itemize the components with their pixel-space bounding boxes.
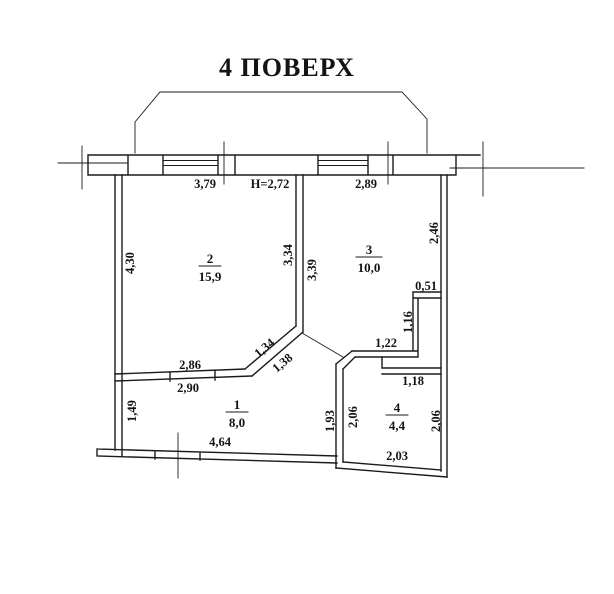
- dim-niche-horizontal: 1,22: [375, 336, 397, 350]
- room4-area: 4,4: [389, 418, 406, 433]
- room2-area: 15,9: [199, 269, 222, 284]
- dim-room2-left: 4,30: [123, 252, 137, 274]
- dim-diag-lower: 1,38: [270, 351, 296, 376]
- floor-plan: 4 ПОВЕРХ 3,79 H=2,72 2,89 4,30 3,34 3,39…: [0, 0, 614, 594]
- dim-room4-left-outer: 1,93: [323, 410, 337, 432]
- balcony-outline: [135, 92, 427, 153]
- dim-room4-top: 1,18: [402, 374, 424, 388]
- left-wall: [115, 175, 122, 456]
- dim-room4-bottom: 2,03: [386, 449, 408, 463]
- window-glyphs: [163, 161, 368, 166]
- top-wall: [88, 155, 480, 175]
- dim-room2-bottom-below: 2,90: [177, 381, 199, 395]
- dim-mid-wall-right: 3,39: [305, 259, 319, 281]
- ceiling-height-label: H=2,72: [251, 177, 290, 191]
- axis-line-right: [450, 142, 584, 196]
- dim-niche-vertical: 1,16: [401, 311, 415, 333]
- dim-room2-bottom-above: 2,86: [179, 358, 201, 372]
- room4-number: 4: [394, 400, 401, 415]
- dim-room4-left-inner: 2,06: [346, 406, 360, 428]
- dim-mid-wall-left: 3,34: [281, 243, 295, 266]
- room2-number: 2: [207, 251, 214, 266]
- dim-top-left: 3,79: [194, 177, 216, 191]
- dim-room4-right: 2,06: [429, 410, 443, 432]
- room1-area: 8,0: [229, 415, 245, 430]
- room3-area: 10,0: [358, 260, 381, 275]
- floor-plan-drawing: 4 ПОВЕРХ 3,79 H=2,72 2,89 4,30 3,34 3,39…: [0, 0, 614, 594]
- dim-top-right: 2,89: [355, 177, 377, 191]
- axis-line-left: [58, 146, 127, 189]
- room4-top-wall: [382, 357, 441, 374]
- room1-number: 1: [234, 397, 241, 412]
- dim-step: 0,51: [415, 279, 437, 293]
- room4-bottom-wall: [336, 462, 447, 477]
- room3-number: 3: [366, 242, 373, 257]
- dim-room3-right: 2,46: [427, 222, 441, 244]
- page-title: 4 ПОВЕРХ: [219, 53, 355, 82]
- dim-room1-left: 1,49: [125, 400, 139, 422]
- dim-room1-bottom: 4,64: [209, 435, 232, 449]
- room1-bottom-wall: [97, 449, 337, 463]
- door-opening-line: [302, 333, 343, 357]
